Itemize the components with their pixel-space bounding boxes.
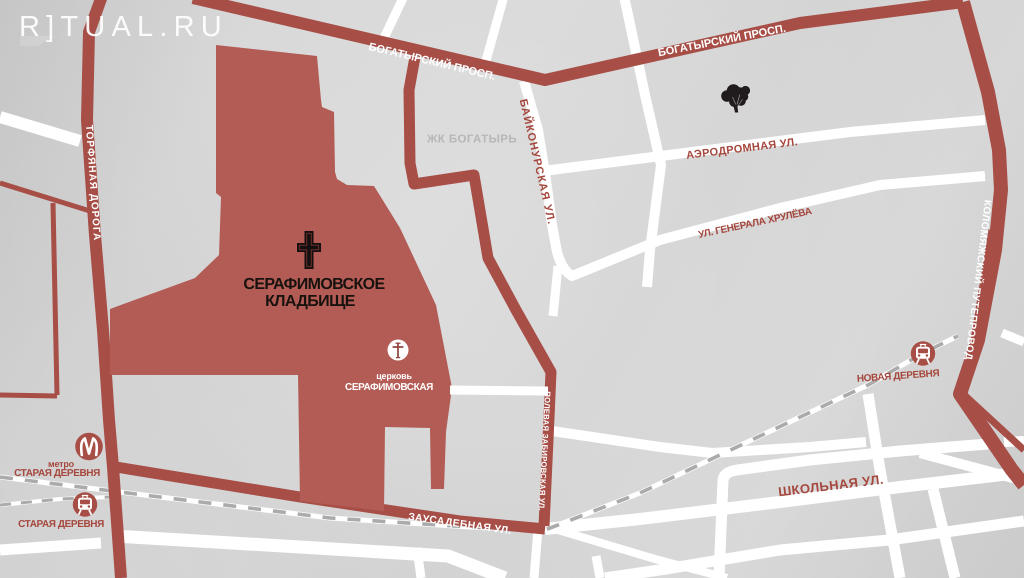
svg-text:ЖК БОГАТЫРЬ: ЖК БОГАТЫРЬ xyxy=(426,133,517,145)
svg-text:КЛАДБИЩЕ: КЛАДБИЩЕ xyxy=(265,293,356,310)
svg-text:СТАРАЯ ДЕРЕВНЯ: СТАРАЯ ДЕРЕВНЯ xyxy=(14,468,100,479)
svg-text:СЕРАФИМОВСКОЕ: СЕРАФИМОВСКОЕ xyxy=(243,276,385,293)
svg-text:церковь: церковь xyxy=(376,371,412,381)
svg-text:СТАРАЯ ДЕРЕВНЯ: СТАРАЯ ДЕРЕВНЯ xyxy=(18,519,104,530)
svg-text:СЕРАФИМОВСКАЯ: СЕРАФИМОВСКАЯ xyxy=(345,382,433,393)
